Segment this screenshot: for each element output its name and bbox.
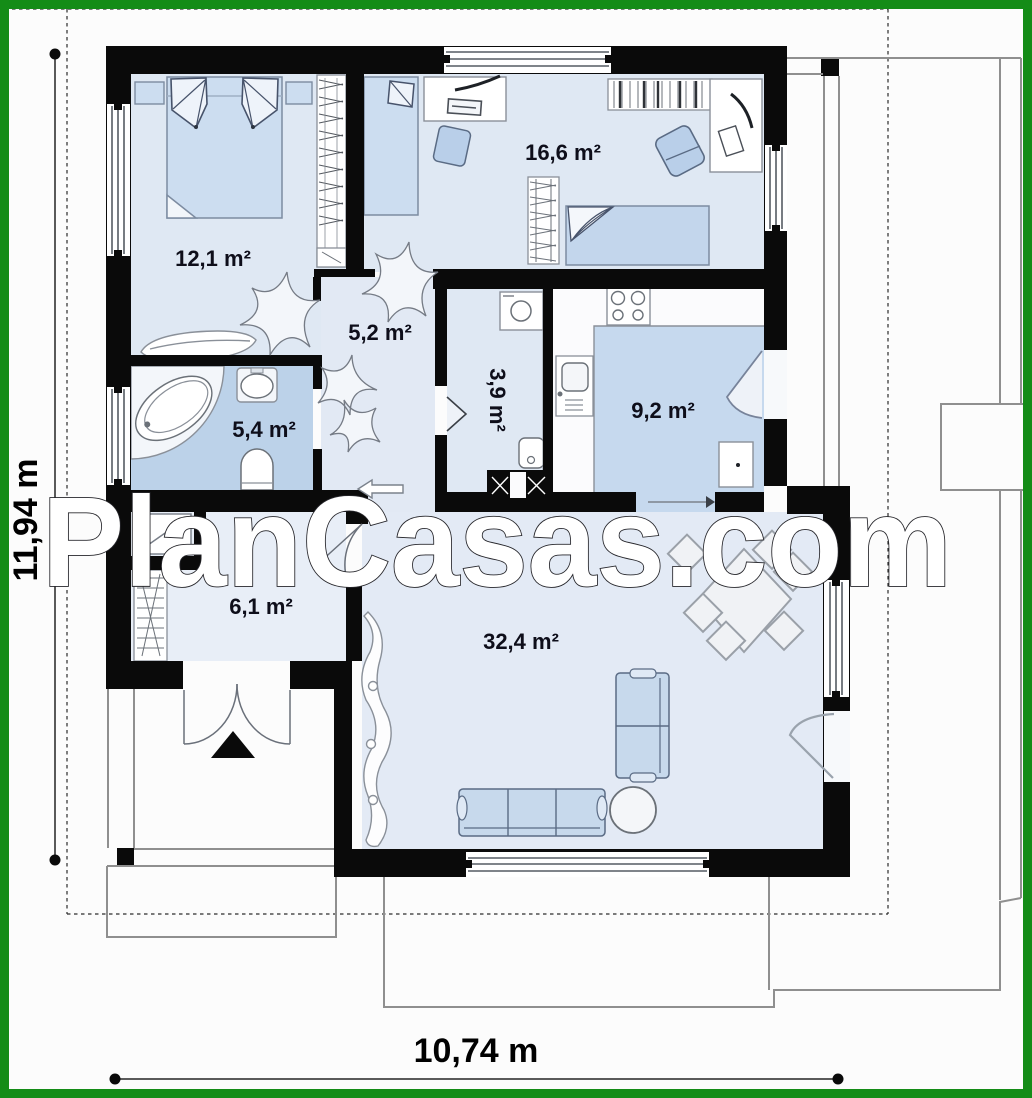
svg-text:10,74 m: 10,74 m (414, 1032, 539, 1070)
svg-text:3,9 m²: 3,9 m² (485, 368, 510, 432)
svg-text:9,2 m²: 9,2 m² (631, 398, 695, 423)
svg-text:32,4 m²: 32,4 m² (483, 629, 559, 654)
svg-text:12,1 m²: 12,1 m² (175, 246, 251, 271)
svg-text:5,2 m²: 5,2 m² (348, 320, 412, 345)
svg-text:11,94 m: 11,94 m (7, 459, 45, 582)
svg-text:16,6 m²: 16,6 m² (525, 140, 601, 165)
svg-text:5,4 m²: 5,4 m² (232, 417, 296, 442)
svg-text:PlanCasas.com: PlanCasas.com (42, 471, 952, 614)
